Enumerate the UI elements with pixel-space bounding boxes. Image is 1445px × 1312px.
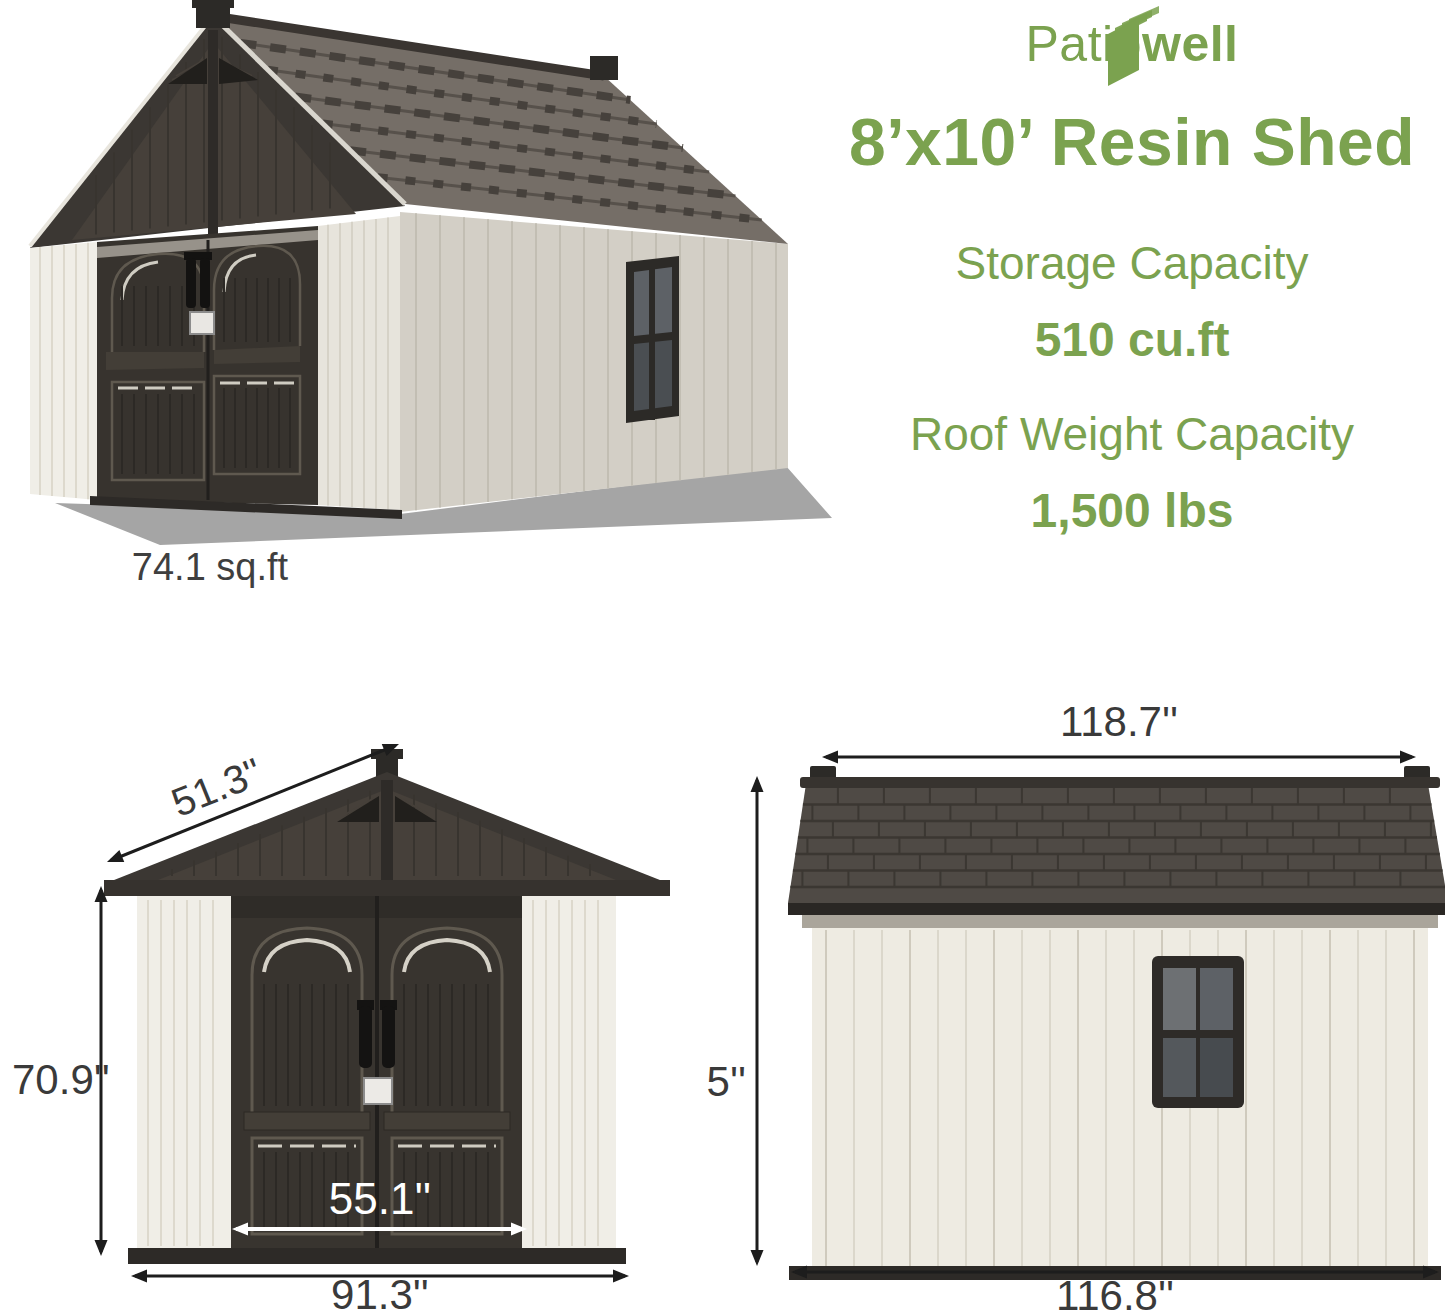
gable-center-post: [381, 780, 393, 884]
book-pages-icon: [1101, 6, 1163, 86]
roof-weight-capacity-label: Roof Weight Capacity: [828, 407, 1436, 461]
front-pillar-right: [522, 896, 616, 1250]
arrowhead: [822, 751, 838, 764]
ridge-cap: [800, 777, 1440, 788]
front-pillar-left: [137, 896, 231, 1250]
front-elevation-diagram: 51.3'' 70.9'' 55.1'' 91.3'': [0, 690, 705, 1312]
arrowhead: [751, 1250, 764, 1266]
arrowhead: [751, 776, 764, 792]
dim-door-width-label: 55.1'': [329, 1174, 431, 1223]
dim-base-length-label: 116.8'': [1056, 1272, 1174, 1312]
left-door-midrail: [244, 1112, 370, 1130]
dim-height-label: 94.5'': [705, 1058, 746, 1105]
storage-capacity-value: 510 cu.ft: [828, 312, 1436, 367]
dim-wall-height-label: 70.9'': [12, 1056, 110, 1103]
apex-finial: [196, 2, 230, 28]
rear-finial: [590, 56, 618, 80]
product-infographic: 74.1 sq.ft Patiowell 8’x10’ Resin Shed S…: [0, 0, 1445, 1312]
door-handle: [186, 258, 196, 308]
side-elevation-diagram: 118.7'' 94.5'' 116.8'': [705, 690, 1445, 1312]
door-latch: [190, 312, 214, 334]
roof-weight-capacity-value: 1,500 lbs: [828, 483, 1436, 538]
side-roof: [788, 784, 1445, 903]
window-pane: [1200, 968, 1233, 1030]
door-latch: [364, 1078, 392, 1104]
brand-logo-row: Patiowell: [828, 6, 1436, 86]
side-wall: [812, 928, 1428, 1268]
door-handle: [200, 258, 210, 308]
window-pane: [1163, 968, 1196, 1030]
brand-and-specs: Patiowell 8’x10’ Resin Shed Storage Capa…: [828, 0, 1436, 538]
gable-center-post: [208, 30, 218, 242]
arrowhead: [613, 1270, 629, 1283]
right-door-midrail: [384, 1112, 510, 1130]
door-handle: [382, 1006, 395, 1068]
arrowhead: [95, 1240, 108, 1256]
dim-base-width-label: 91.3'': [331, 1271, 429, 1312]
product-title: 8’x10’ Resin Shed: [828, 104, 1436, 180]
shed3d-side-wall: [400, 212, 788, 512]
floor-base: [128, 1248, 626, 1264]
arrowhead: [107, 850, 124, 862]
eave-shadow: [802, 915, 1438, 928]
eave-fascia: [788, 903, 1445, 915]
3d-shed-illustration: [0, 0, 840, 640]
dim-roof-slope-label: 51.3'': [165, 749, 268, 825]
arrowhead: [1400, 751, 1416, 764]
left-door-midrail: [106, 352, 204, 370]
window-pane: [1163, 1038, 1196, 1097]
footprint-area-label: 74.1 sq.ft: [100, 546, 320, 589]
arrowhead: [131, 1270, 147, 1283]
eave-fascia: [104, 880, 670, 896]
door-handle: [359, 1006, 372, 1068]
dim-roof-length-label: 118.7'': [1060, 698, 1178, 745]
window-pane: [1200, 1038, 1233, 1097]
storage-capacity-label: Storage Capacity: [828, 236, 1436, 290]
